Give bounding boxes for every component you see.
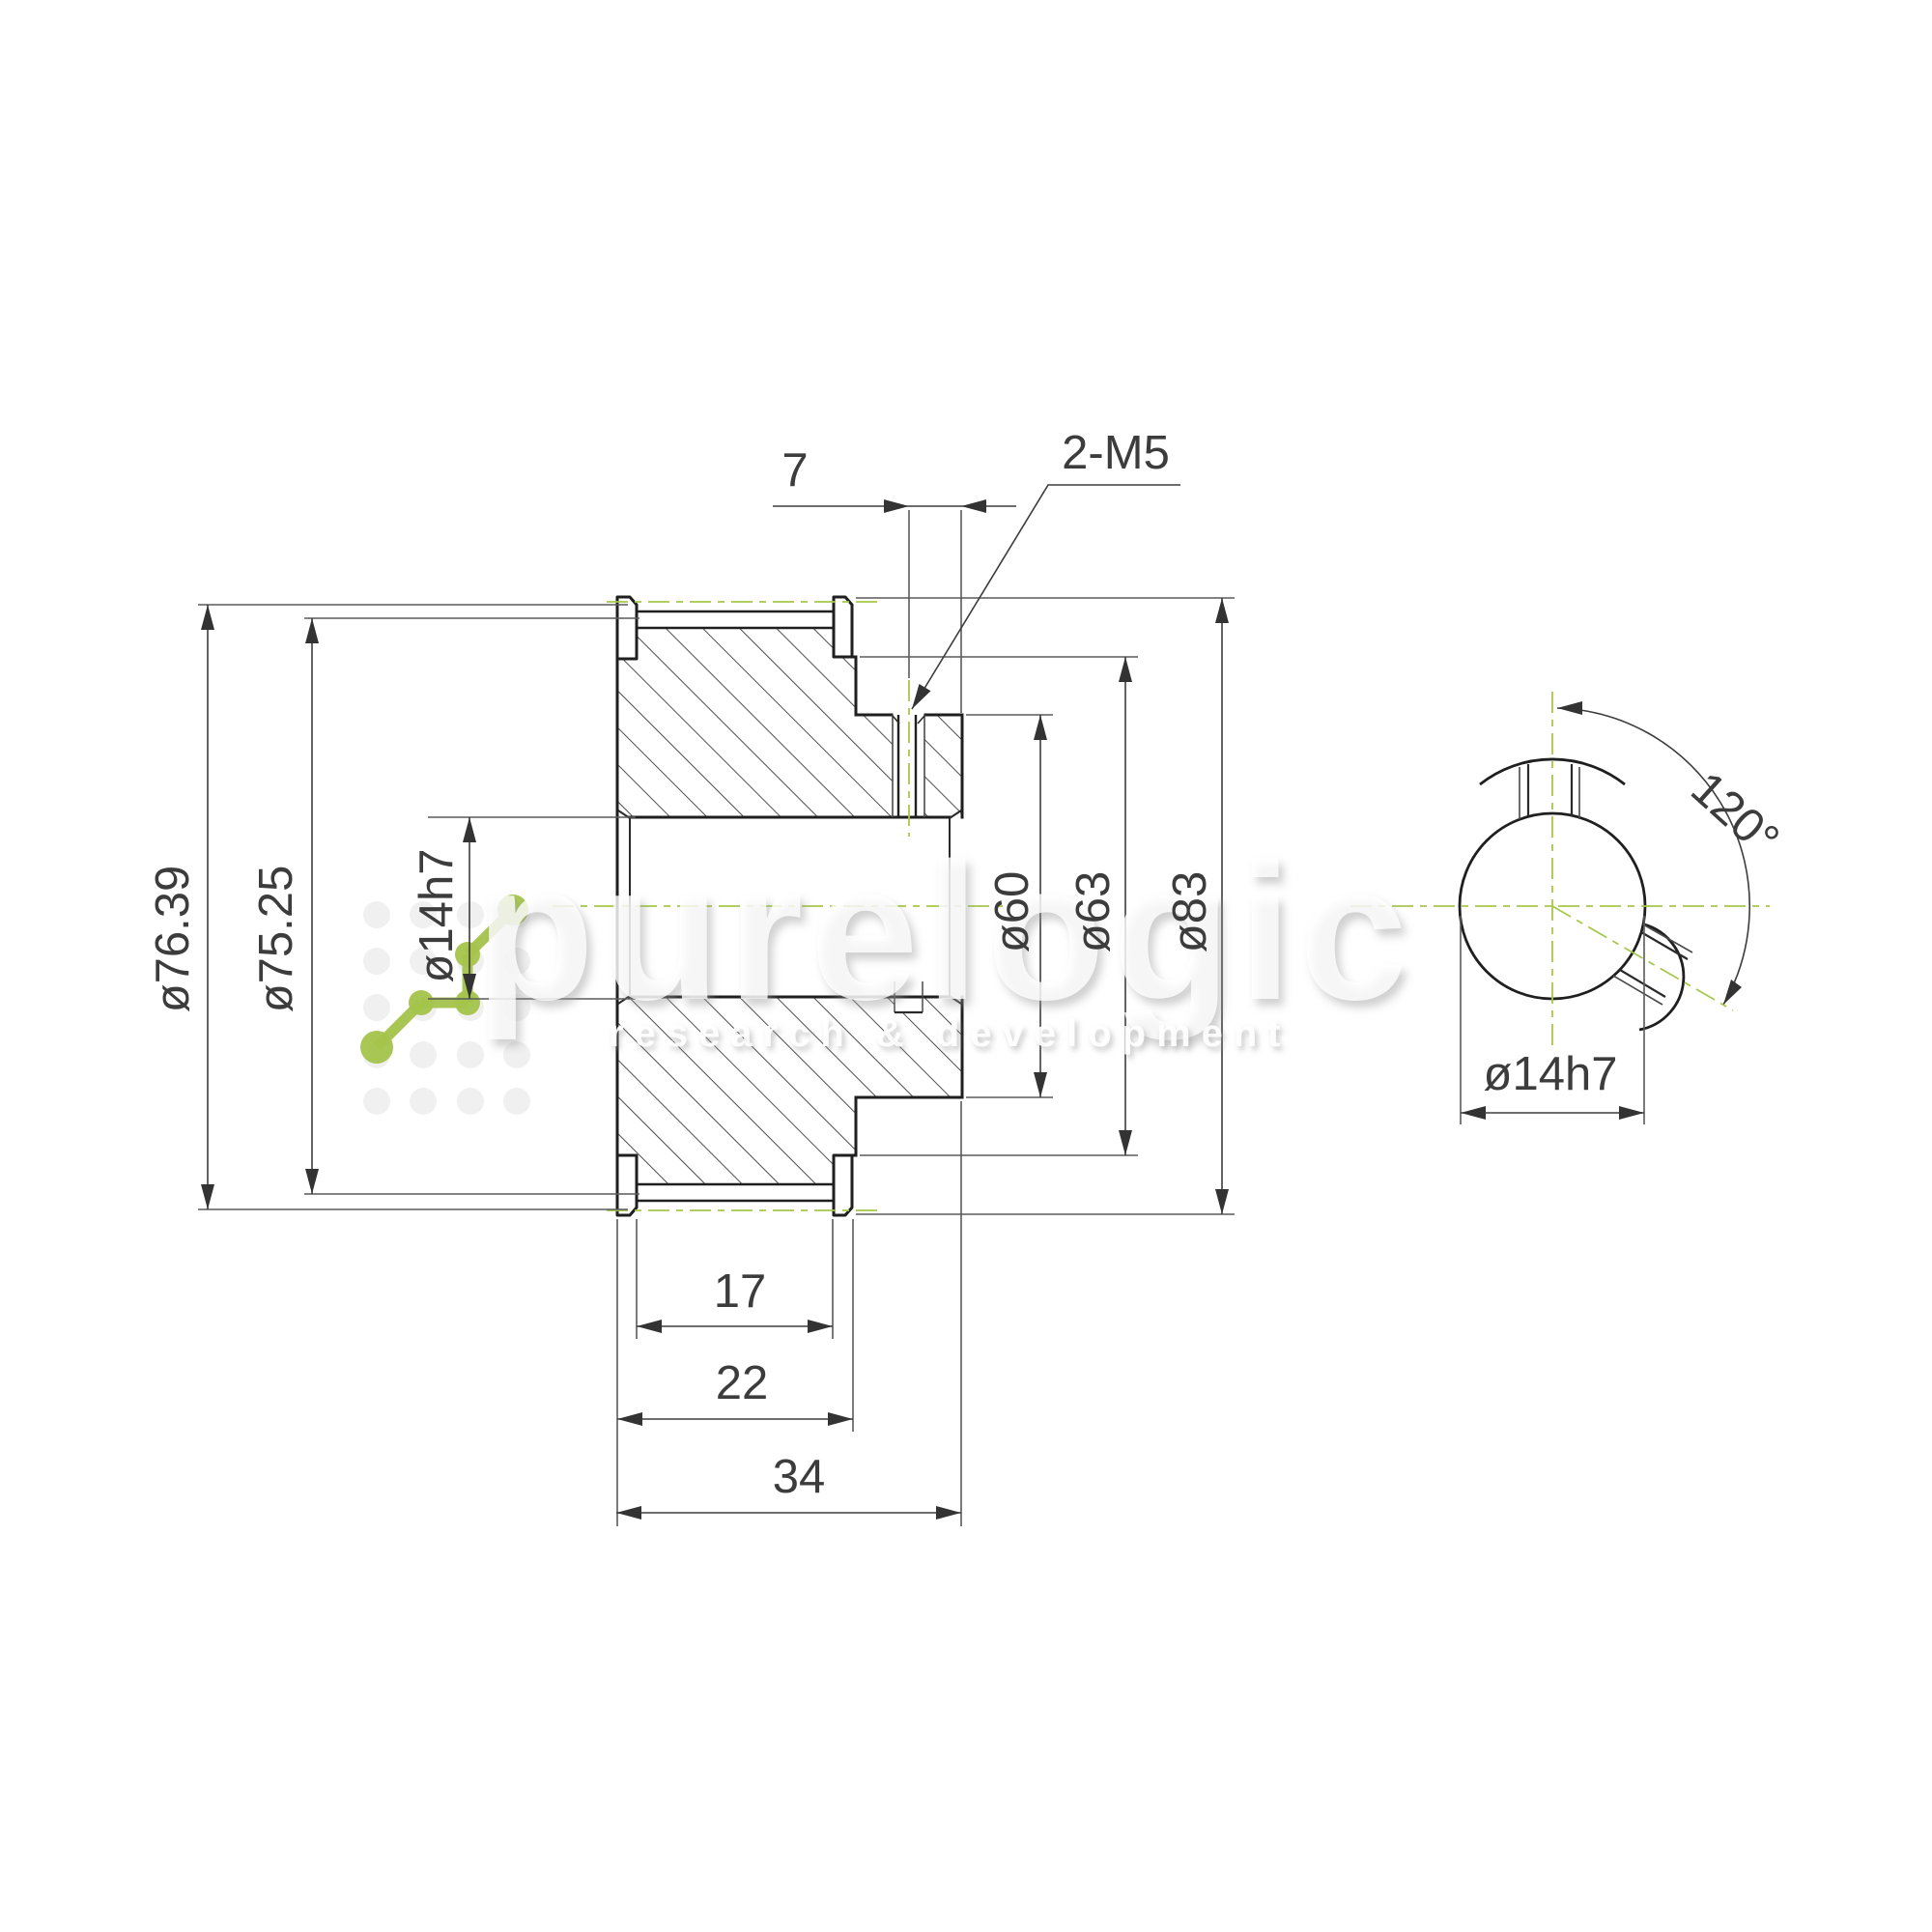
dim-outer-diameter: ø75.25 bbox=[249, 866, 303, 1013]
watermark-brand: purelogic bbox=[475, 819, 1414, 1044]
dim-shoulder-diameter: ø63 bbox=[1066, 871, 1121, 952]
side-hole-threads bbox=[1520, 767, 1692, 1005]
dim-belt-width: 17 bbox=[714, 1264, 767, 1319]
side-view bbox=[1460, 708, 1749, 1030]
dim-flange-diameter: ø83 bbox=[1163, 871, 1217, 952]
dim-bore-side-view: ø14h7 bbox=[1484, 1047, 1618, 1101]
dim-hole-offset: 7 bbox=[781, 443, 808, 497]
dim-bore-diameter: ø14h7 bbox=[410, 849, 464, 983]
dim-pitch-diameter: ø76.39 bbox=[146, 866, 200, 1013]
dim-thread-note: 2-M5 bbox=[1062, 426, 1170, 480]
dim-flange-width: 22 bbox=[716, 1356, 769, 1410]
dim-total-width: 34 bbox=[773, 1450, 826, 1504]
dim-hub-diameter: ø60 bbox=[985, 871, 1039, 952]
watermark-tagline: research & development bbox=[609, 1012, 1292, 1056]
drawing-canvas: purelogic research & development ø76.39 … bbox=[0, 0, 1932, 1932]
angle-dimension-arc bbox=[1557, 708, 1749, 1005]
